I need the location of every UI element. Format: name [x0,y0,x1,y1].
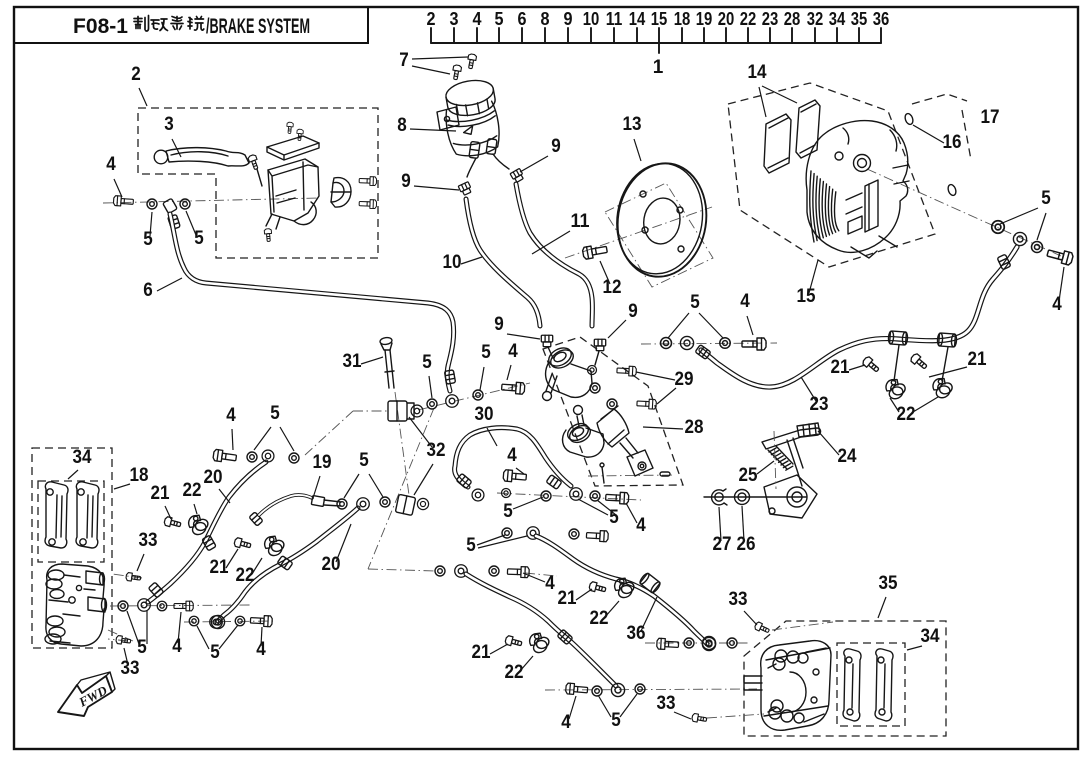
svg-text:5: 5 [143,229,153,250]
svg-text:22: 22 [183,480,202,501]
svg-text:5: 5 [194,228,204,249]
svg-text:15: 15 [651,9,668,29]
svg-text:5: 5 [611,710,621,731]
svg-text:4: 4 [740,291,750,312]
svg-text:9: 9 [564,9,573,29]
svg-text:6: 6 [143,280,153,301]
svg-text:17: 17 [981,107,1000,128]
svg-text:29: 29 [675,369,694,390]
svg-text:13: 13 [623,114,642,135]
svg-text:21: 21 [558,588,577,609]
svg-text:23: 23 [762,9,779,29]
svg-text:35: 35 [851,9,868,29]
svg-text:21: 21 [831,357,850,378]
svg-text:4: 4 [636,515,646,536]
svg-text:34: 34 [73,447,92,468]
svg-text:2: 2 [131,64,141,85]
svg-text:3: 3 [450,9,459,29]
svg-text:4: 4 [226,405,236,426]
svg-text:5: 5 [495,9,504,29]
svg-text:21: 21 [151,483,170,504]
svg-text:19: 19 [313,452,332,473]
svg-text:5: 5 [422,352,432,373]
svg-text:5: 5 [466,535,476,556]
svg-text:28: 28 [784,9,801,29]
svg-text:9: 9 [551,136,561,157]
svg-text:F08-1: F08-1 [73,15,128,38]
svg-text:14: 14 [748,62,767,83]
svg-text:33: 33 [729,589,748,610]
svg-text:9: 9 [401,171,411,192]
svg-text:/BRAKE SYSTEM: /BRAKE SYSTEM [206,15,310,38]
svg-text:22: 22 [236,565,255,586]
svg-text:5: 5 [210,642,220,663]
svg-text:4: 4 [172,636,182,657]
svg-text:8: 8 [397,115,407,136]
svg-text:12: 12 [603,277,622,298]
svg-text:20: 20 [718,9,735,29]
svg-text:22: 22 [897,404,916,425]
svg-text:4: 4 [1052,294,1062,315]
svg-text:9: 9 [494,314,504,335]
svg-text:4: 4 [545,573,555,594]
svg-text:5: 5 [481,342,491,363]
svg-text:31: 31 [343,351,362,372]
svg-text:4: 4 [473,9,482,29]
svg-text:2: 2 [427,9,436,29]
svg-text:34: 34 [829,9,846,29]
svg-text:18: 18 [674,9,691,29]
svg-text:5: 5 [137,637,147,658]
svg-text:10: 10 [443,252,462,273]
svg-text:25: 25 [739,465,758,486]
svg-text:16: 16 [943,132,962,153]
svg-text:23: 23 [810,394,829,415]
svg-text:15: 15 [797,286,816,307]
svg-text:36: 36 [873,9,890,29]
svg-text:33: 33 [657,693,676,714]
svg-text:21: 21 [472,642,491,663]
svg-text:1: 1 [653,57,664,78]
svg-text:9: 9 [628,301,638,322]
svg-text:19: 19 [696,9,713,29]
svg-text:6: 6 [518,9,527,29]
svg-text:11: 11 [606,9,623,29]
svg-text:22: 22 [590,608,609,629]
svg-text:10: 10 [583,9,600,29]
svg-text:34: 34 [921,626,940,647]
svg-text:27: 27 [713,534,732,555]
svg-text:18: 18 [130,465,149,486]
svg-text:24: 24 [838,446,857,467]
svg-text:26: 26 [737,534,756,555]
svg-text:5: 5 [359,450,369,471]
svg-text:7: 7 [399,50,409,71]
svg-text:4: 4 [507,445,517,466]
svg-text:22: 22 [505,662,524,683]
svg-text:30: 30 [475,404,494,425]
svg-text:32: 32 [807,9,824,29]
svg-text:33: 33 [139,530,158,551]
svg-text:28: 28 [685,417,704,438]
svg-text:22: 22 [740,9,757,29]
svg-text:5: 5 [503,501,513,522]
svg-text:20: 20 [204,467,223,488]
svg-text:4: 4 [508,341,518,362]
svg-text:33: 33 [121,658,140,679]
svg-text:8: 8 [541,9,550,29]
svg-text:14: 14 [629,9,646,29]
svg-text:35: 35 [879,573,898,594]
svg-text:5: 5 [270,403,280,424]
svg-text:11: 11 [571,211,590,232]
svg-text:3: 3 [164,114,174,135]
svg-text:4: 4 [106,154,116,175]
svg-text:5: 5 [690,292,700,313]
svg-text:21: 21 [968,349,987,370]
svg-text:5: 5 [1041,188,1051,209]
